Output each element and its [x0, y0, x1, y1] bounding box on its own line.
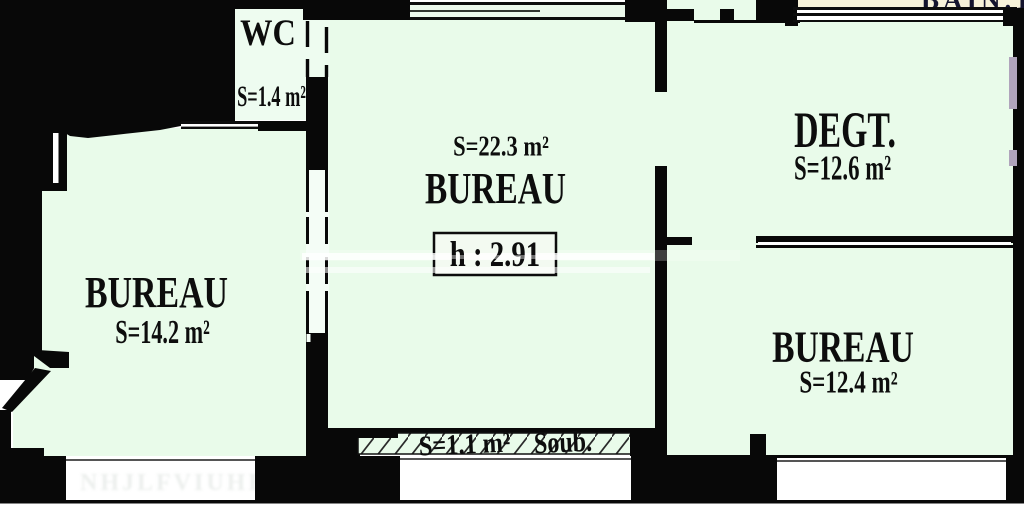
svg-text:WC: WC	[240, 12, 296, 54]
svg-text:S=22.3 m²: S=22.3 m²	[453, 130, 549, 162]
svg-text:h : 2.91: h : 2.91	[450, 235, 540, 275]
svg-text:S=12.4 m²: S=12.4 m²	[799, 364, 897, 399]
svg-text:S=14.2 m²: S=14.2 m²	[115, 315, 210, 352]
svg-text:S=1.1 m²: S=1.1 m²	[418, 426, 511, 462]
svg-text:NHJLFVIUHE: NHJLFVIUHE	[80, 470, 267, 496]
svg-text:BUREAU: BUREAU	[85, 268, 228, 318]
svg-text:BUREAU: BUREAU	[425, 163, 566, 213]
svg-text:Soub.: Soub.	[533, 424, 592, 460]
svg-text:S=1.4 m²: S=1.4 m²	[237, 81, 306, 114]
svg-text:S=12.6 m²: S=12.6 m²	[794, 149, 891, 188]
